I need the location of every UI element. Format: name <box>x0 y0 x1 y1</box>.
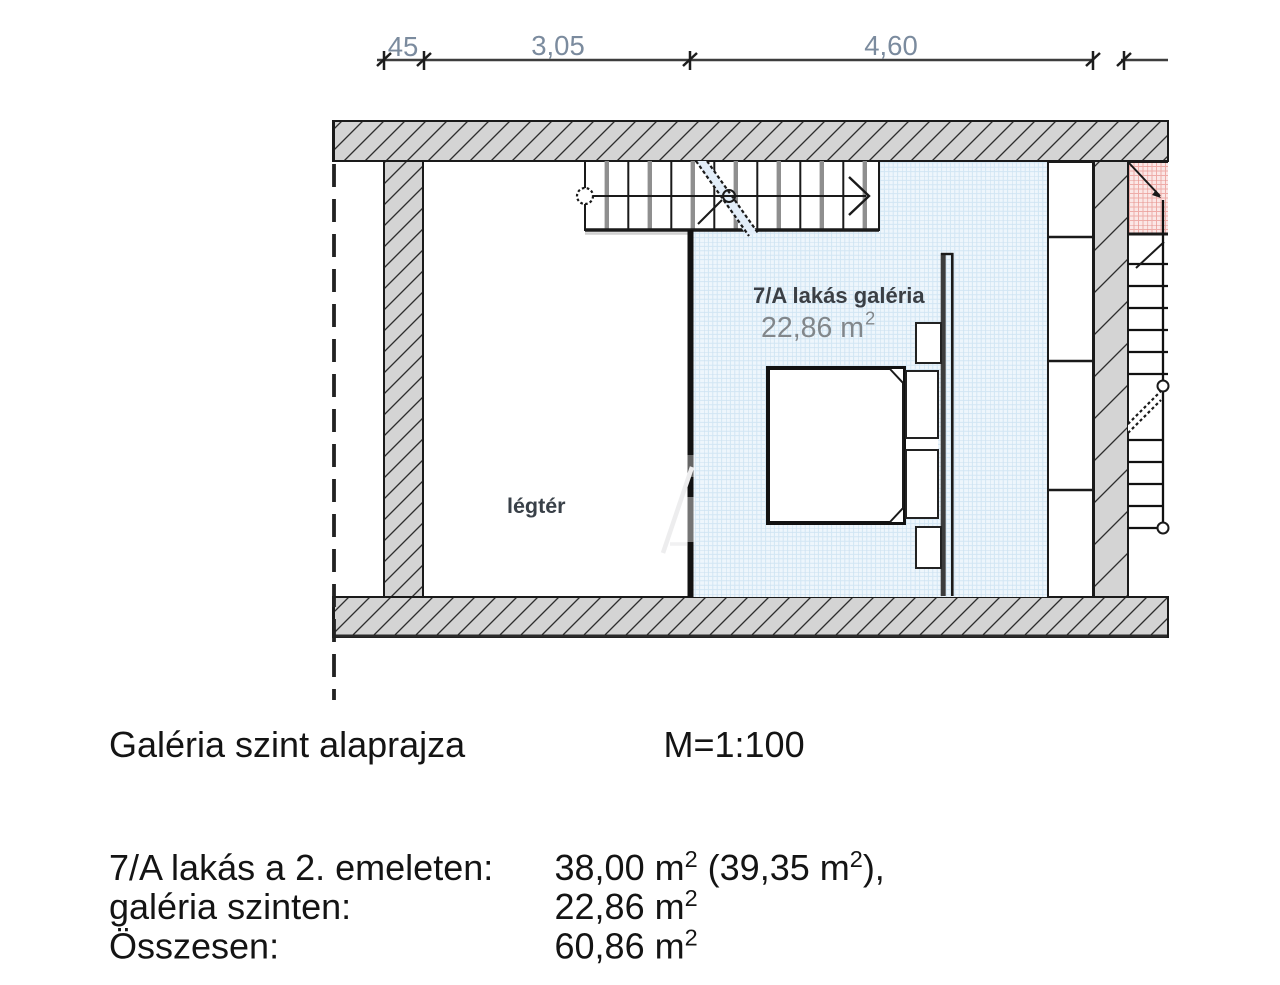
svg-text:Összesen:: Összesen: <box>109 926 279 967</box>
svg-text:22,86 m: 22,86 m <box>761 312 864 344</box>
svg-text:3,05: 3,05 <box>531 30 585 61</box>
svg-text:4,60: 4,60 <box>864 30 918 61</box>
svg-text:galéria szinten:: galéria szinten: <box>109 886 351 927</box>
svg-text:7/A lakás galéria: 7/A lakás galéria <box>753 283 925 308</box>
svg-text:22,86 m2: 22,86 m2 <box>555 885 698 927</box>
svg-text:7/A lakás a 2. emeleten:: 7/A lakás a 2. emeleten: <box>109 847 493 888</box>
svg-text:45: 45 <box>388 31 419 62</box>
svg-text:M=1:100: M=1:100 <box>664 724 805 765</box>
svg-text:2: 2 <box>865 308 875 329</box>
svg-text:38,00 m2 (39,35 m2),: 38,00 m2 (39,35 m2), <box>555 846 885 888</box>
svg-text:Galéria szint alaprajza: Galéria szint alaprajza <box>109 724 466 765</box>
svg-text:légtér: légtér <box>507 494 566 518</box>
svg-text:60,86 m2: 60,86 m2 <box>555 925 698 967</box>
